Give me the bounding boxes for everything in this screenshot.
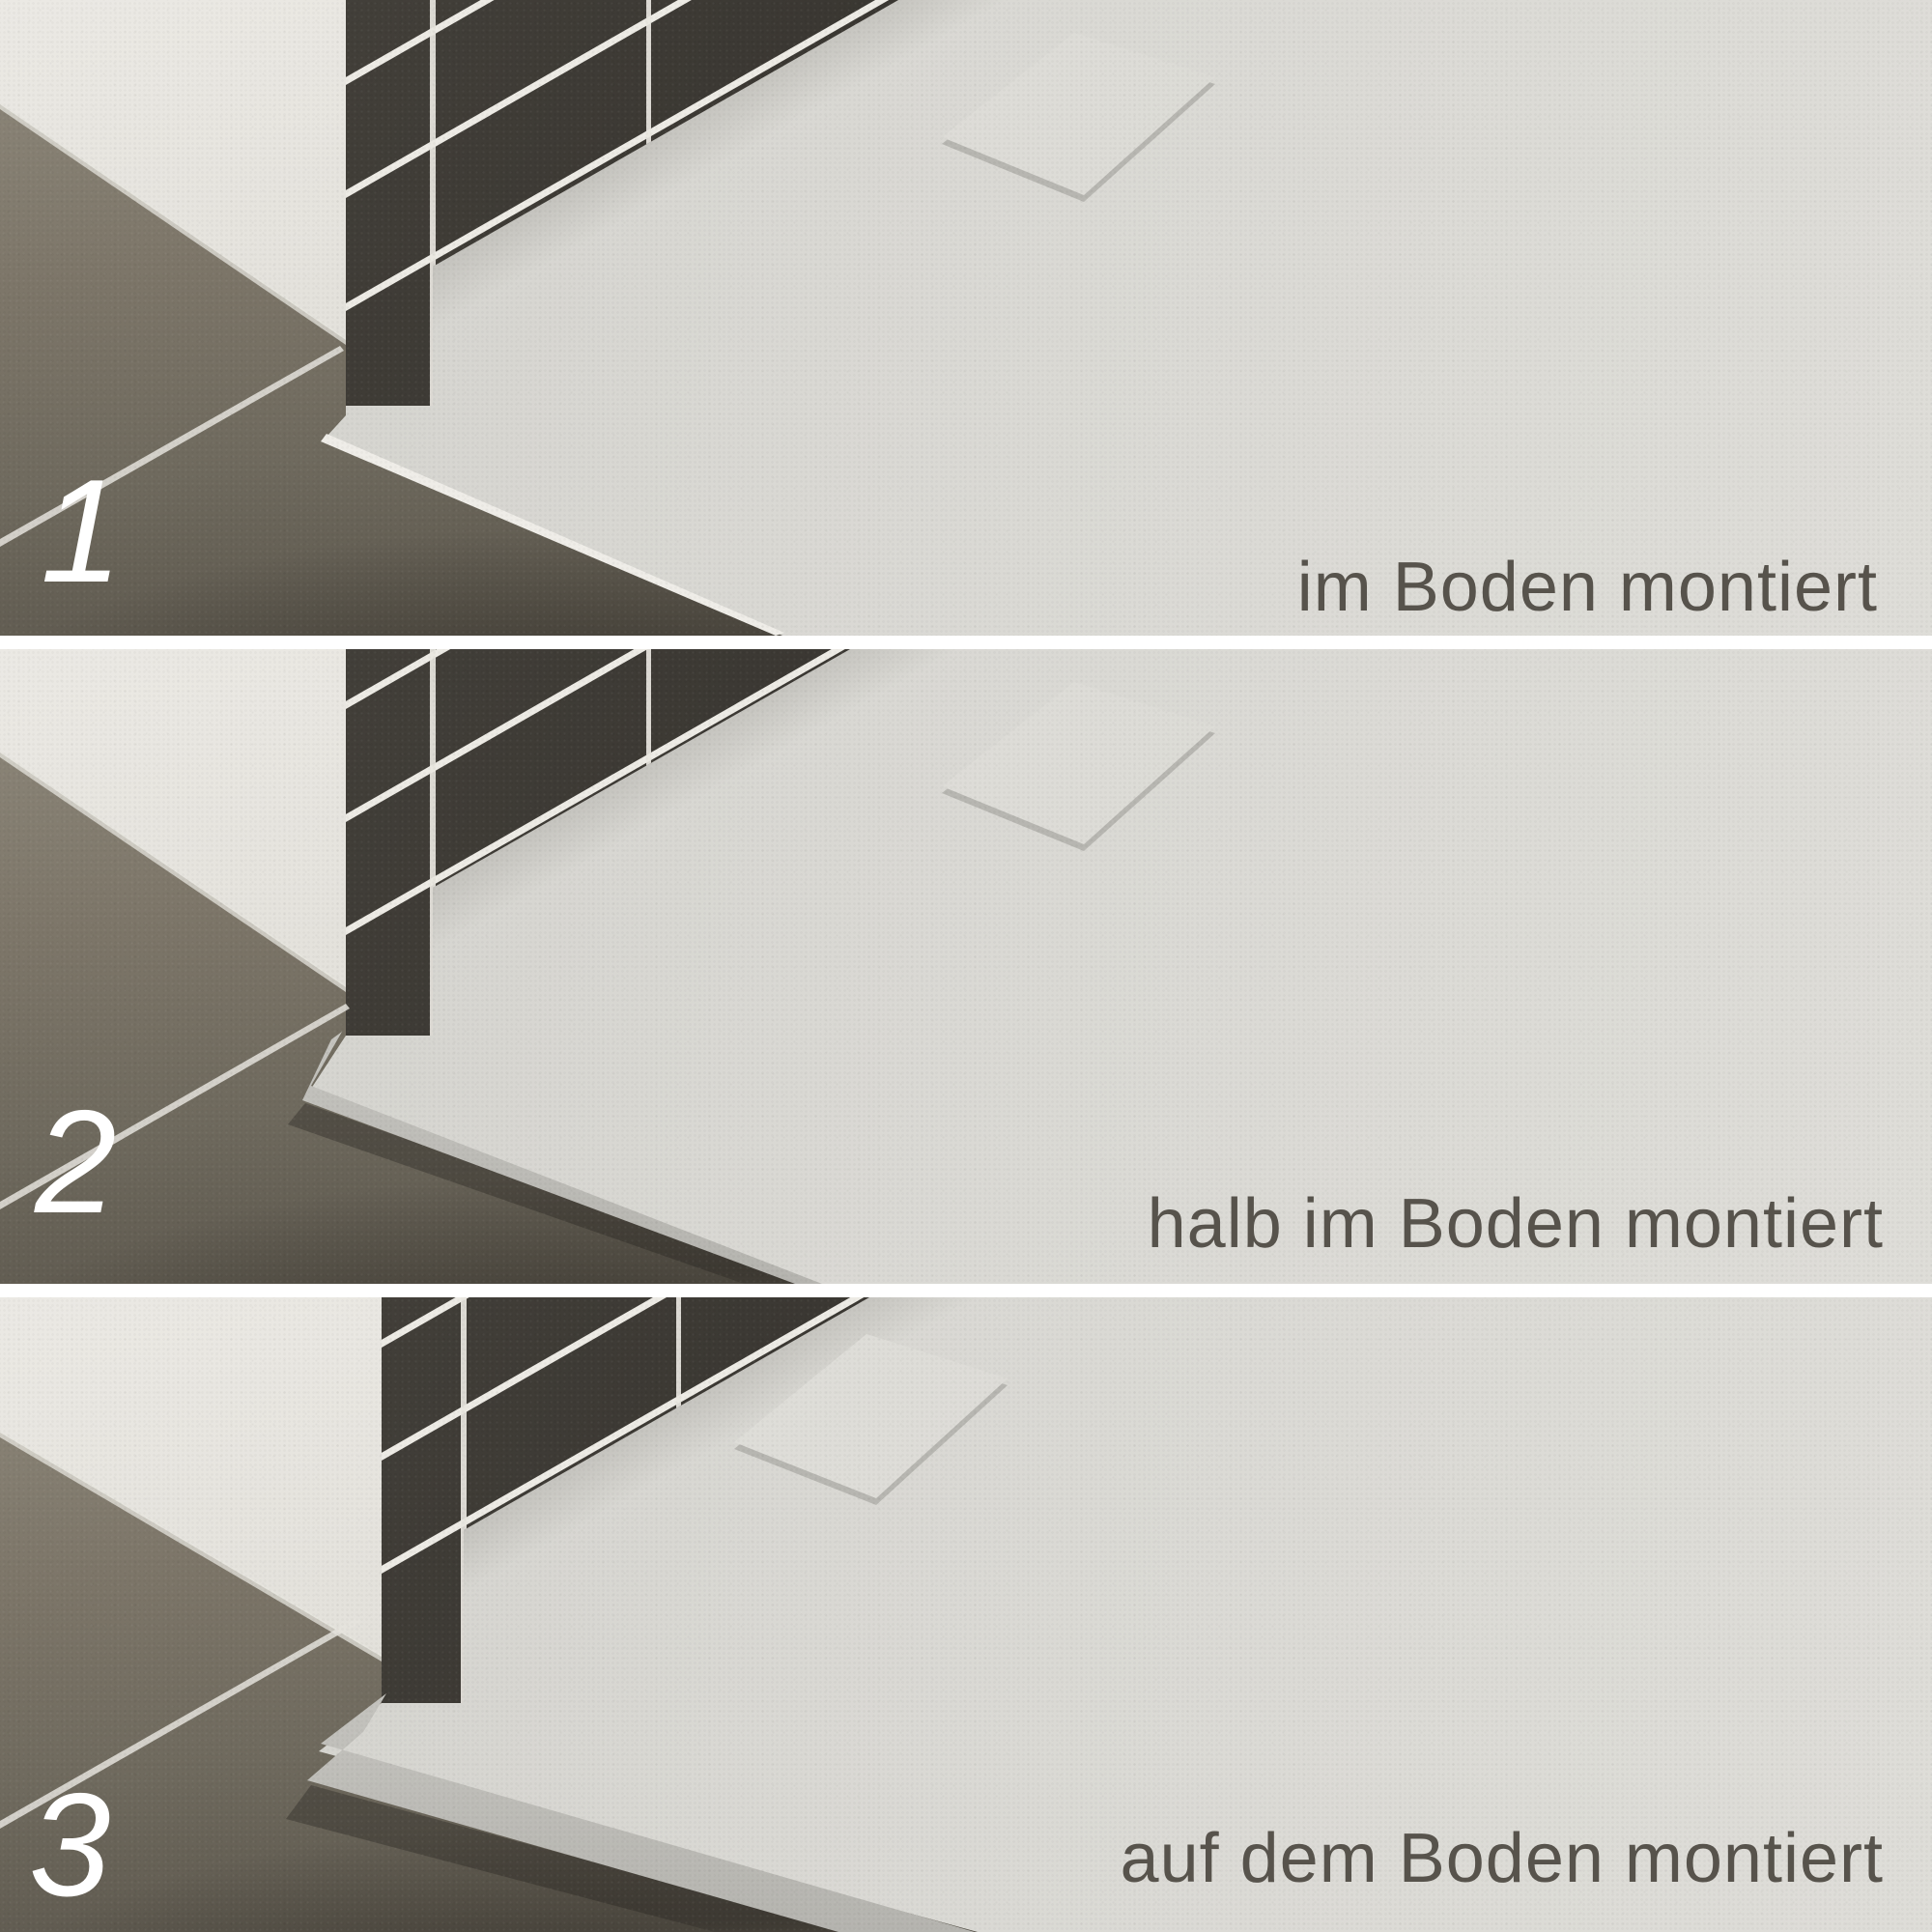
installation-label: halb im Boden montiert bbox=[1148, 1189, 1884, 1259]
panel-installation-option-2: 2 halb im Boden montiert bbox=[0, 649, 1932, 1284]
installation-number: 1 bbox=[41, 458, 123, 605]
installation-number: 2 bbox=[35, 1089, 117, 1236]
installation-number: 3 bbox=[29, 1772, 111, 1918]
installation-label: auf dem Boden montiert bbox=[1121, 1824, 1884, 1893]
panel-installation-option-3: 3 auf dem Boden montiert bbox=[0, 1297, 1932, 1932]
panel-installation-option-1: 1 im Boden montiert bbox=[0, 0, 1932, 636]
installation-label: im Boden montiert bbox=[1297, 553, 1878, 622]
